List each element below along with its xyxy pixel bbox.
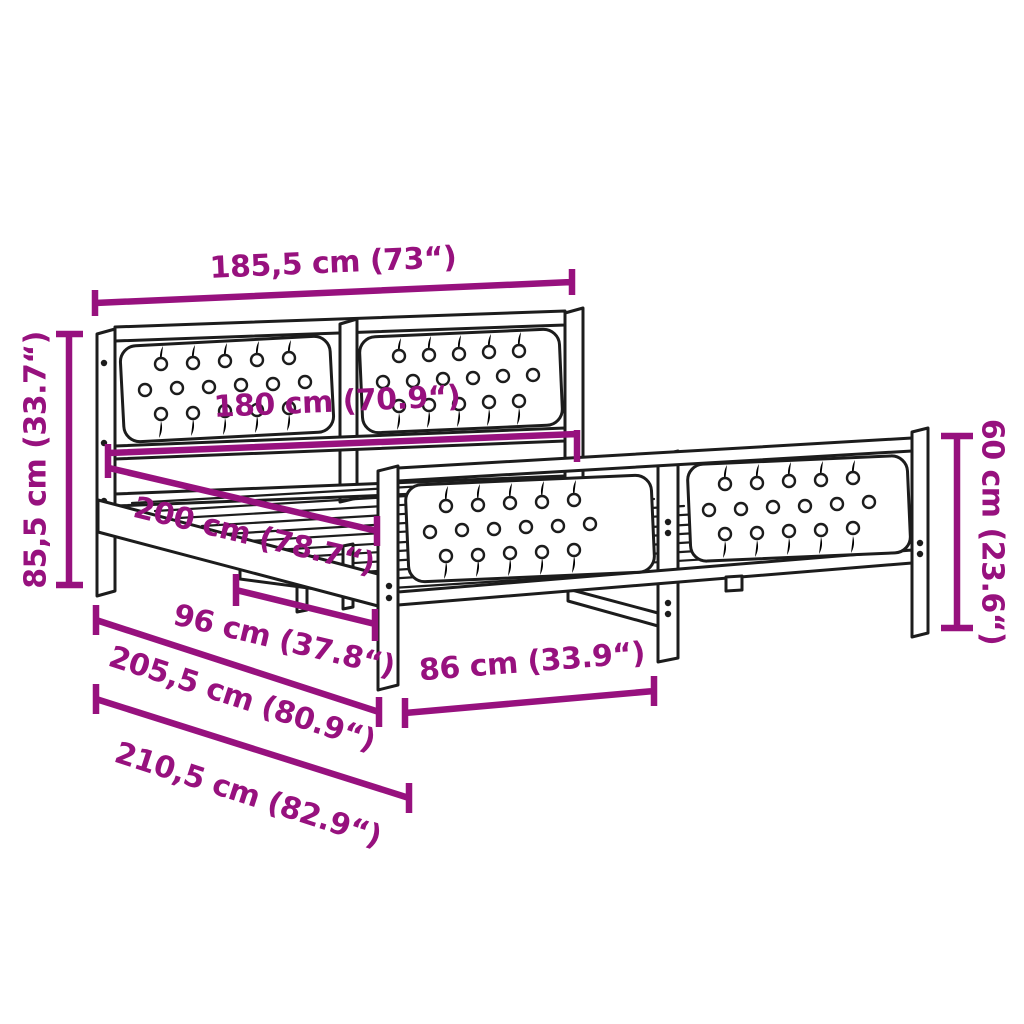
dimension-label-overall-length: 210,5 cm (82.9“) (110, 735, 385, 854)
footboard-center-post (658, 451, 678, 662)
dimension-footboard-height: 60 cm (23.6“) (941, 419, 1010, 645)
footboard-bracket (726, 576, 742, 591)
footboard-cushion-right (687, 455, 911, 562)
dimension-label-footboard-section-length: 86 cm (33.9“) (418, 636, 646, 689)
dimension-label-overall-width: 185,5 cm (73“) (209, 240, 457, 286)
dimension-label-footboard-height: 60 cm (23.6“) (975, 419, 1010, 645)
dimension-headboard-height: 85,5 cm (33.7“) (19, 331, 84, 589)
dimension-label-headboard-height: 85,5 cm (33.7“) (19, 331, 54, 589)
dimension-overall-width: 185,5 cm (73“) (95, 240, 572, 316)
right-side-rail (568, 589, 658, 626)
footboard-right-post (912, 428, 928, 637)
headboard-cushion-right (359, 329, 563, 434)
bed-dimension-diagram: 185,5 cm (73“) 180 cm (70.9“) 85,5 cm (3… (0, 0, 1024, 1024)
footboard-cushion-left (405, 475, 655, 583)
diagram-canvas: 185,5 cm (73“) 180 cm (70.9“) 85,5 cm (3… (0, 0, 1024, 1024)
dimension-footboard-section-length: 86 cm (33.9“) (405, 636, 654, 728)
